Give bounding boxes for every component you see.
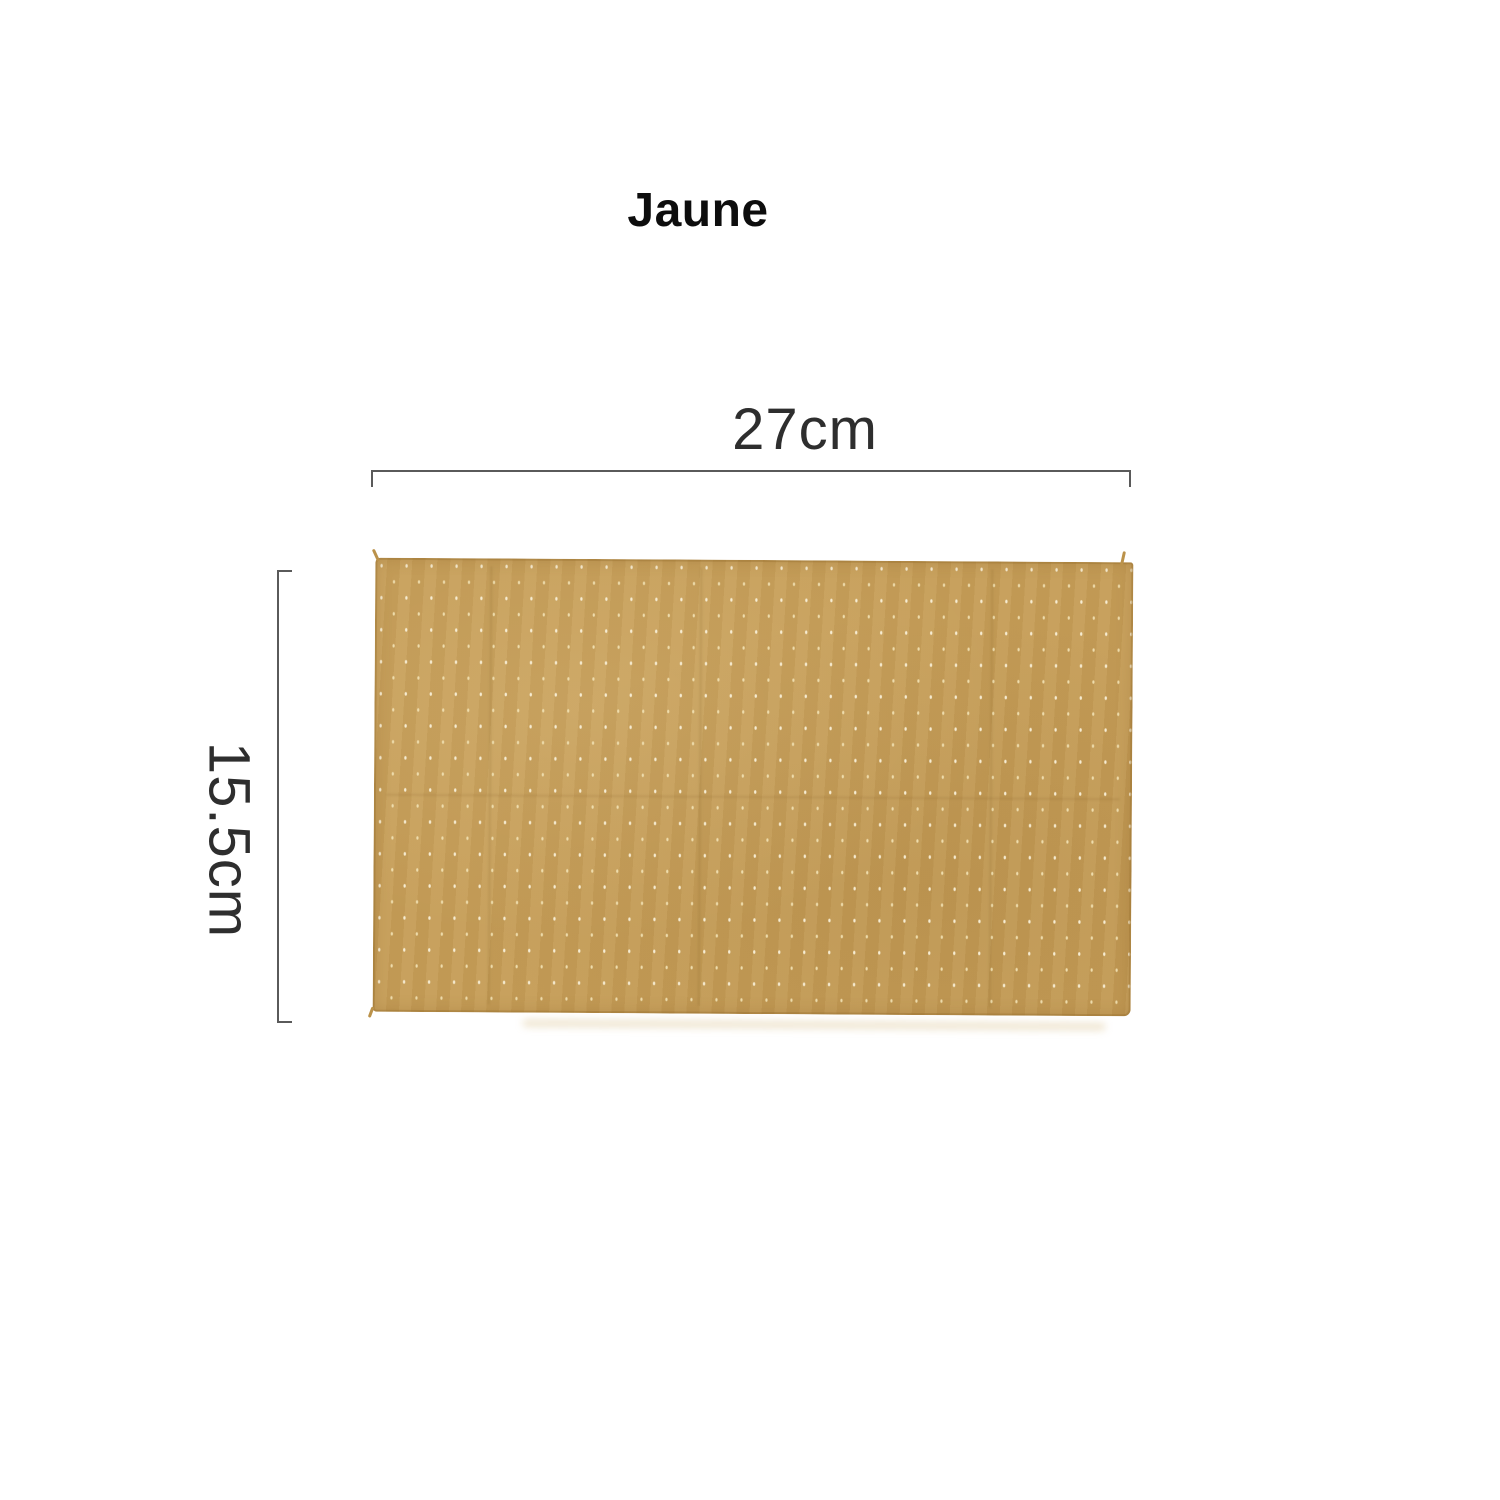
fabric-fray bbox=[368, 1006, 375, 1017]
fabric-fray bbox=[1120, 551, 1126, 566]
fabric-seam-vertical bbox=[989, 569, 994, 1007]
fabric-seam-vertical bbox=[488, 566, 493, 1004]
height-dimension-label: 15.5cm bbox=[196, 742, 263, 938]
width-dimension-line bbox=[371, 470, 1131, 487]
width-dimension-label: 27cm bbox=[732, 396, 878, 463]
fabric-seam-vertical bbox=[698, 568, 703, 1006]
fabric-fray-wisps bbox=[523, 1020, 1106, 1031]
fabric-fray bbox=[372, 549, 380, 562]
color-name-title: Jaune bbox=[627, 183, 768, 238]
product-dimension-diagram: Jaune 27cm 15.5cm bbox=[0, 0, 1500, 1500]
product-photo-polka-dot-cloth bbox=[373, 558, 1134, 1017]
height-dimension-line bbox=[277, 570, 292, 1023]
fabric-seam-horizontal bbox=[386, 794, 1120, 800]
